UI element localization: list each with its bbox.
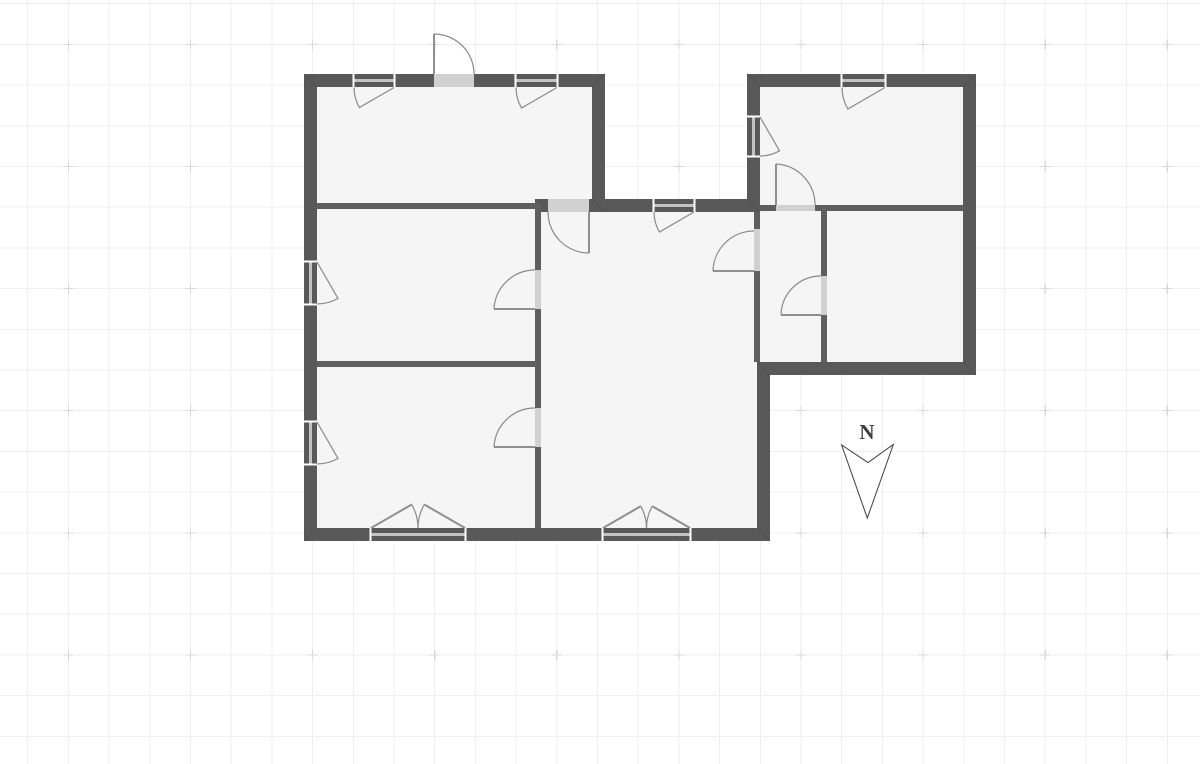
svg-text:N: N <box>859 420 874 444</box>
